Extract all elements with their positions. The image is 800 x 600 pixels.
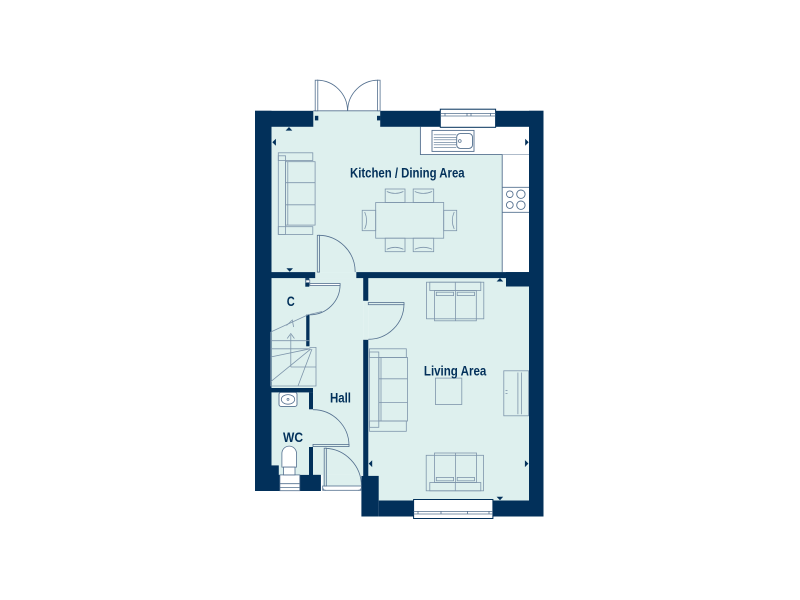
svg-text:Kitchen / Dining Area: Kitchen / Dining Area xyxy=(350,165,465,181)
svg-text:Living Area: Living Area xyxy=(424,362,487,378)
svg-text:Hall: Hall xyxy=(330,389,351,405)
svg-text:C: C xyxy=(287,293,295,309)
svg-text:WC: WC xyxy=(283,429,303,445)
